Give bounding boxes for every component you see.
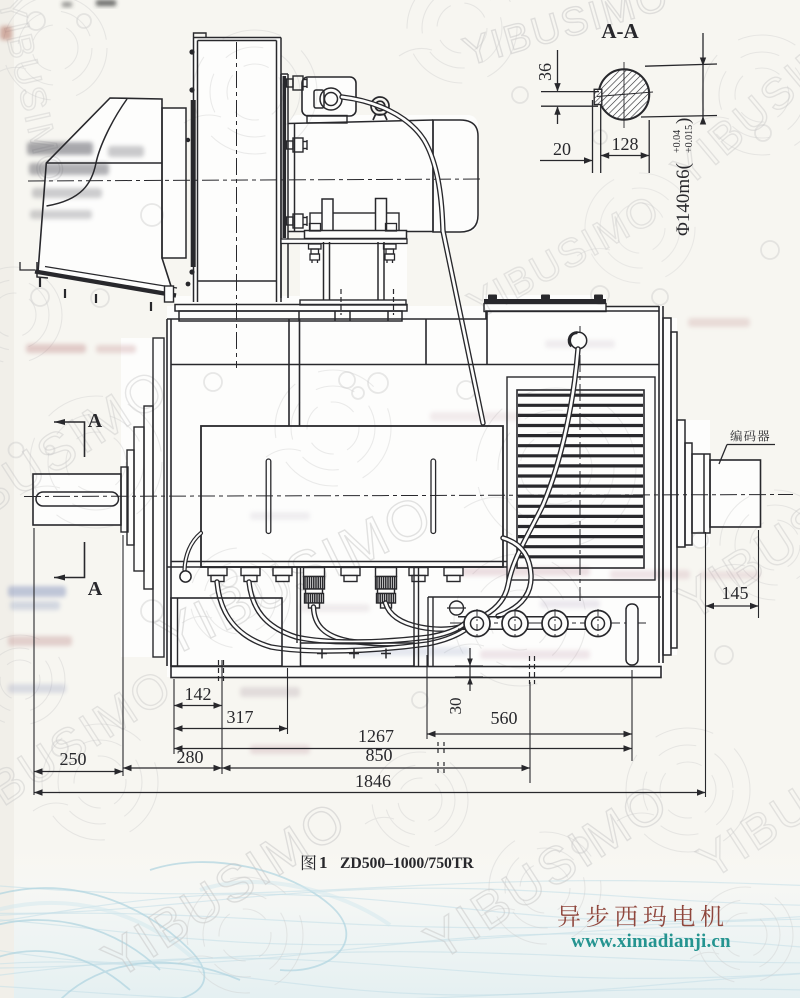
svg-text:850: 850 xyxy=(366,745,393,765)
svg-text:1267: 1267 xyxy=(358,726,394,746)
svg-text:ZD500–1000/750TR: ZD500–1000/750TR xyxy=(340,855,474,872)
svg-text:280: 280 xyxy=(177,747,204,767)
svg-text:A-A: A-A xyxy=(601,19,639,43)
svg-text:20: 20 xyxy=(553,139,571,159)
svg-text:Φ140m6(: Φ140m6( xyxy=(673,163,694,236)
svg-text:145: 145 xyxy=(722,583,749,603)
svg-text:317: 317 xyxy=(227,707,254,727)
svg-text:142: 142 xyxy=(185,684,212,704)
svg-text:1846: 1846 xyxy=(355,771,391,791)
svg-text:250: 250 xyxy=(60,749,87,769)
svg-text:1: 1 xyxy=(319,853,328,872)
svg-text:A: A xyxy=(88,578,103,600)
svg-text:A: A xyxy=(88,410,103,432)
svg-text:30: 30 xyxy=(446,698,465,715)
svg-text:): ) xyxy=(673,118,694,124)
svg-text:560: 560 xyxy=(491,708,518,728)
svg-text:36: 36 xyxy=(535,63,555,81)
svg-text:+0.015: +0.015 xyxy=(684,125,695,153)
svg-text:+0.04: +0.04 xyxy=(672,130,683,153)
svg-text:128: 128 xyxy=(612,134,639,154)
svg-text:www.ximadianji.cn: www.ximadianji.cn xyxy=(571,931,731,952)
